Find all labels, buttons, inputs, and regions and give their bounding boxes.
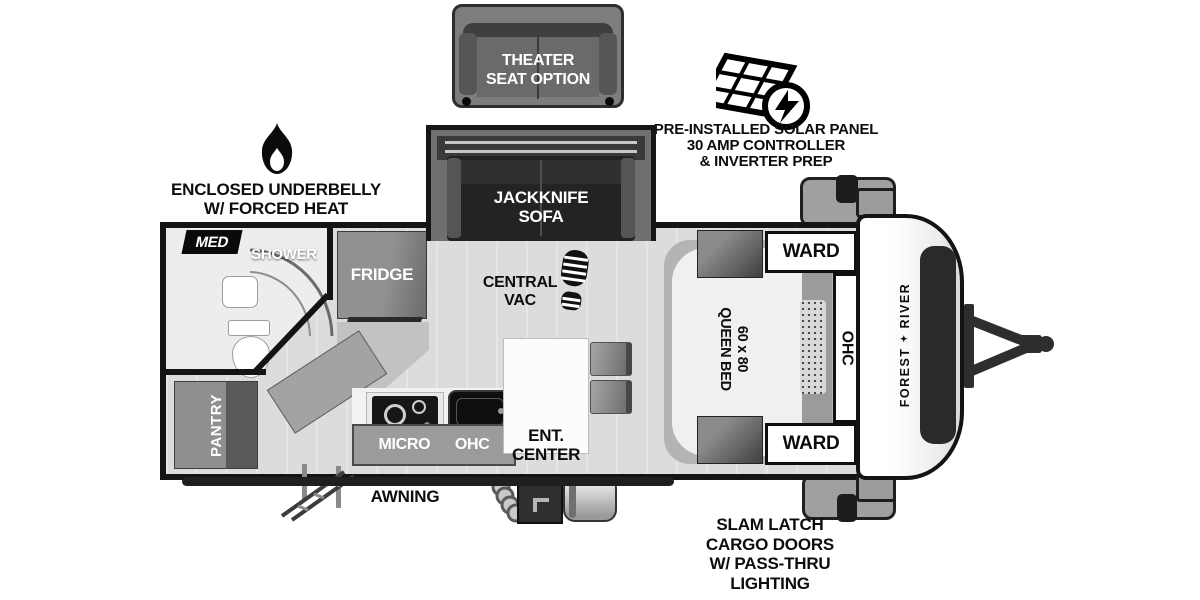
theater-seat-label: THEATER SEAT OPTION: [461, 51, 615, 89]
burner: [384, 404, 406, 426]
overhead-cabinet-bar: MICRO OHC: [352, 424, 516, 466]
solar-callout: PRE-INSTALLED SOLAR PANEL 30 AMP CONTROL…: [640, 122, 892, 170]
solar-panel-icon: [716, 40, 820, 134]
shower-label: SHOWER: [240, 246, 328, 263]
pillow: [800, 300, 826, 394]
awning-label: AWNING: [350, 487, 460, 507]
slide-marker-dot: [462, 97, 471, 106]
roof-slat: [445, 150, 637, 153]
med-cabinet: MED: [181, 230, 242, 254]
bathroom-sink: [222, 276, 258, 308]
fridge: FRIDGE: [337, 231, 427, 319]
queen-bed-label: 60 x 80 QUEEN BED: [690, 306, 776, 392]
utility-handle: [533, 498, 537, 512]
jackknife-sofa-label: JACKKNIFE SOFA: [451, 188, 631, 226]
jackknife-sofa-slideout: JACKKNIFE SOFA: [426, 125, 656, 241]
cargo-latch-top: [836, 175, 858, 203]
flame-icon: [256, 122, 298, 176]
wardrobe-front-top: WARD: [765, 231, 857, 273]
nightstand: [697, 416, 763, 464]
ent-center-label: ENT. CENTER: [500, 426, 592, 464]
front-window: [920, 246, 956, 444]
roof-slat: [445, 141, 637, 144]
kitchen-ohc-label: OHC: [455, 436, 490, 454]
brand-emblem-icon: ✦: [899, 333, 909, 342]
hitch-icon: [948, 294, 1060, 398]
rv-floorplan: THEATER SEAT OPTION PRE-INSTALLED SOLAR …: [0, 0, 1200, 600]
slide-marker-dot: [605, 97, 614, 106]
bathroom-wall: [164, 369, 266, 375]
pantry: PANTRY: [174, 381, 258, 469]
wardrobe-front-bottom: WARD: [765, 423, 857, 465]
underbelly-callout: ENCLOSED UNDERBELLY W/ FORCED HEAT: [162, 180, 390, 218]
bathroom-wall: [327, 228, 333, 300]
sink-basin: [456, 398, 504, 426]
theater-seat-option-callout: THEATER SEAT OPTION: [452, 4, 624, 108]
micro-label: MICRO: [379, 436, 431, 454]
awning-bar: [182, 477, 674, 486]
dinette-chair: [590, 342, 632, 376]
toilet-tank: [228, 320, 270, 336]
brand-logo: FOREST ✦ RIVER: [898, 265, 914, 425]
burner: [412, 400, 426, 414]
dinette-chair: [590, 380, 632, 414]
nightstand: [697, 230, 763, 278]
slam-latch-callout: SLAM LATCH CARGO DOORS W/ PASS-THRU LIGH…: [688, 515, 852, 593]
